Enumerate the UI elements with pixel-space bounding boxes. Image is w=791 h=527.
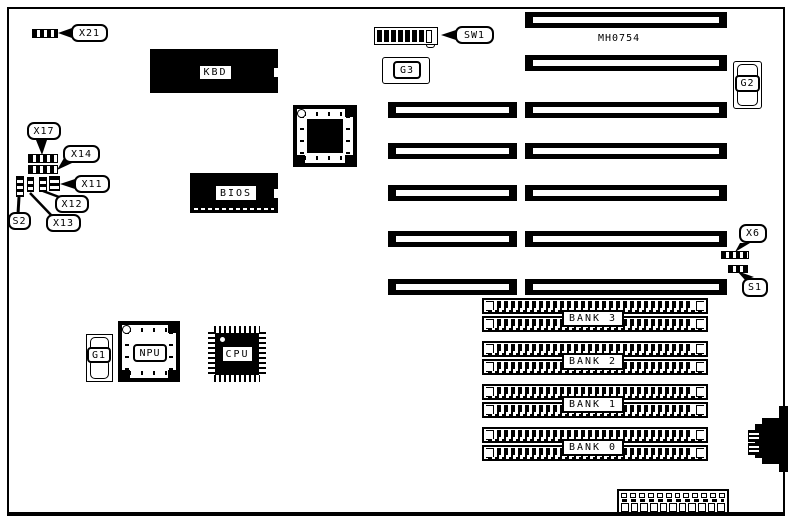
isa-slot-r4 (525, 143, 727, 159)
isa-slot-l1 (388, 102, 517, 118)
g1-label: G1 (87, 347, 111, 363)
x17-callout: X17 (27, 122, 61, 140)
isa-slot-l5 (388, 279, 517, 295)
motherboard-diagram: { "diagram": { "model_text": "MH0754", "… (0, 0, 791, 527)
bank1-label: BANK 1 (562, 396, 624, 413)
isa-slot-l4 (388, 231, 517, 247)
kbd-chip-notch (274, 68, 278, 77)
x21-connector (32, 29, 58, 38)
s1-callout: S1 (742, 278, 768, 297)
power-connector (617, 489, 729, 514)
x12-connector (39, 177, 47, 192)
din-connector (779, 406, 788, 472)
bios-chip-label: BIOS (215, 185, 257, 201)
isa-slot-r5 (525, 185, 727, 201)
isa-slot-l3 (388, 185, 517, 201)
din-pin-block (748, 443, 760, 455)
sw1-dip-switch (374, 27, 438, 45)
cpu-chip-label: CPU (222, 346, 253, 362)
g3-label: G3 (393, 61, 421, 79)
isa-slot-r7 (525, 279, 727, 295)
isa-slot-r6 (525, 231, 727, 247)
s2-connector (16, 176, 24, 197)
x11-connector (49, 176, 60, 191)
x6-connector (721, 251, 749, 259)
g2-label: G2 (735, 75, 760, 92)
model-number-text: MH0754 (598, 33, 640, 44)
isa-slot-r3 (525, 102, 727, 118)
kbd-chip-label: KBD (199, 65, 232, 80)
sw1-callout: SW1 (455, 26, 494, 44)
x13-connector (27, 177, 34, 192)
x6-callout: X6 (739, 224, 767, 243)
x11-callout: X11 (74, 175, 110, 193)
bank2-label: BANK 2 (562, 353, 624, 370)
s2-callout: S2 (8, 212, 31, 230)
isa-slot-l2 (388, 143, 517, 159)
npu-chip-label: NPU (133, 344, 167, 362)
bank3-label: BANK 3 (562, 310, 624, 327)
x14-callout: X14 (63, 145, 100, 163)
pin1-notch (220, 337, 225, 342)
x14-connector (28, 165, 58, 174)
din-pin-block (748, 430, 760, 442)
isa-slot-r2 (525, 55, 727, 71)
x12-callout: X12 (55, 195, 89, 213)
plcc-chip (293, 105, 357, 167)
pin1-notch (297, 109, 306, 118)
x13-callout: X13 (46, 214, 81, 232)
pin1-notch (122, 325, 131, 334)
s1-connector (728, 265, 748, 273)
bank0-label: BANK 0 (562, 439, 624, 456)
isa-slot-r1 (525, 12, 727, 28)
x21-callout: X21 (71, 24, 108, 42)
x17-connector (28, 154, 58, 163)
